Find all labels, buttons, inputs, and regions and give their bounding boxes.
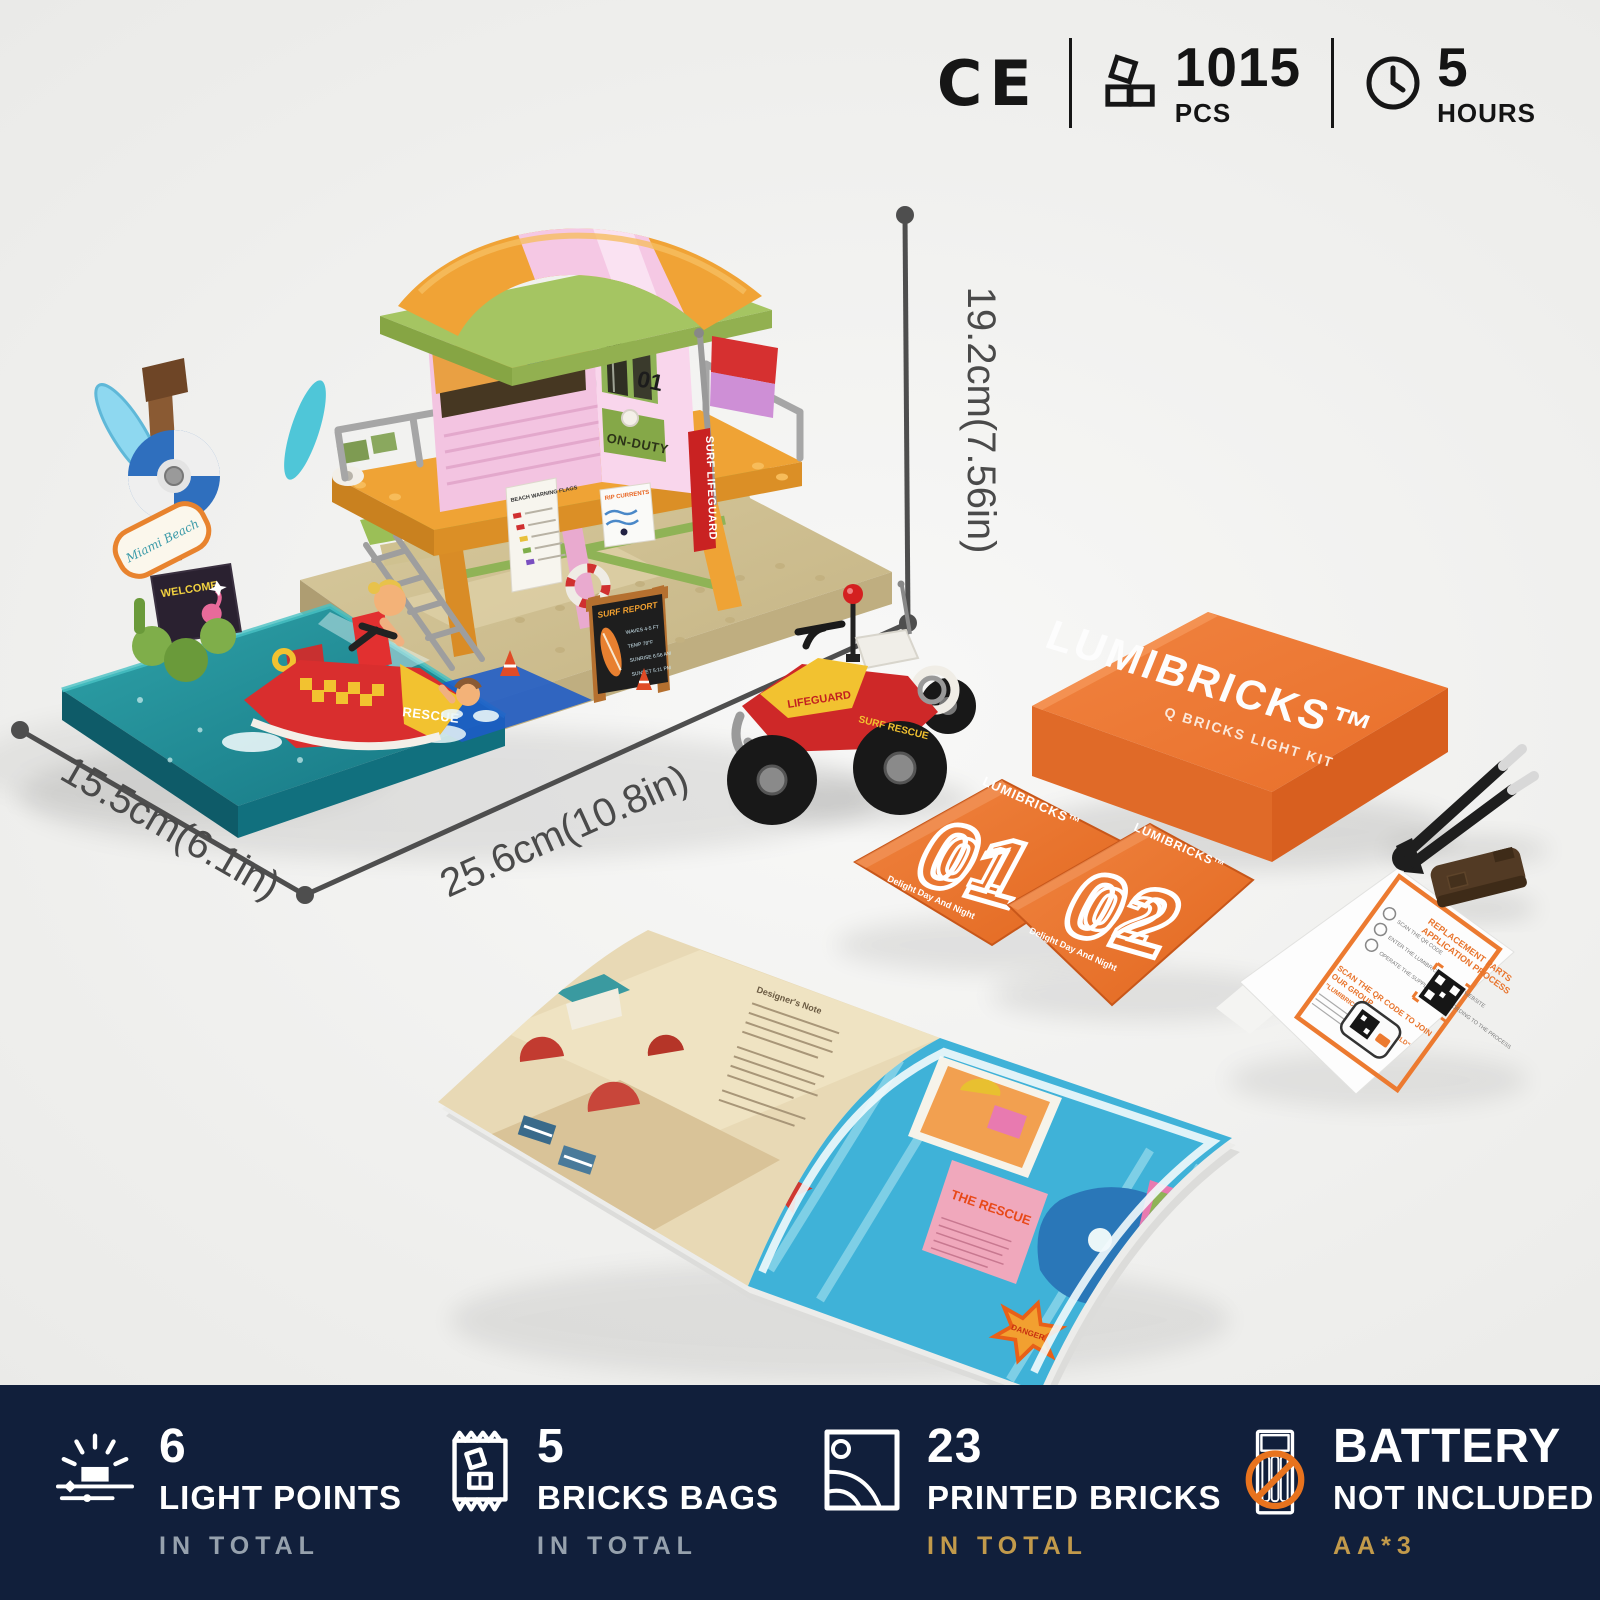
surf-report-board: SURF REPORT WAVES 4-5 FT TEMP 78°F SUNRI… bbox=[586, 585, 672, 703]
feature-label: PRINTED BRICKS bbox=[927, 1481, 1222, 1514]
feature-battery: BATTERY NOT INCLUDED AA*3 bbox=[1242, 1423, 1594, 1559]
beach-signpost: Miami Beach WELCOME bbox=[85, 358, 241, 682]
pieces-unit: PCS bbox=[1175, 100, 1301, 126]
pieces-count-badge: 1015 PCS bbox=[1102, 40, 1301, 126]
features-bar: 6 LIGHT POINTS IN TOTAL 5 BRICKS BAGS IN… bbox=[0, 1385, 1600, 1600]
feature-light-points: 6 LIGHT POINTS IN TOTAL bbox=[56, 1423, 402, 1559]
certification-badges: CE 1015 PCS 5 HO bbox=[937, 38, 1536, 128]
time-unit: HOURS bbox=[1437, 100, 1536, 126]
bricks-bag-icon bbox=[448, 1425, 512, 1519]
product-infographic: 15.5cm(6.1in) 25.6cm(10.8in) 19.2cm(7.56… bbox=[0, 0, 1600, 1600]
build-time-badge: 5 HOURS bbox=[1364, 40, 1536, 126]
badge-divider bbox=[1331, 38, 1334, 128]
feature-note: IN TOTAL bbox=[927, 1534, 1222, 1559]
feature-note: AA*3 bbox=[1333, 1534, 1594, 1559]
feature-note: IN TOTAL bbox=[537, 1534, 779, 1559]
feature-value: BATTERY bbox=[1333, 1423, 1594, 1471]
feature-label: NOT INCLUDED bbox=[1333, 1481, 1594, 1514]
rip-currents-sign: RIP CURRENTS bbox=[600, 483, 655, 547]
feature-label: BRICKS BAGS bbox=[537, 1481, 779, 1514]
battery-icon bbox=[1242, 1425, 1308, 1521]
feature-value: 23 bbox=[927, 1423, 1222, 1471]
badge-divider bbox=[1069, 38, 1072, 128]
porthole bbox=[622, 410, 638, 426]
ce-mark: CE bbox=[937, 47, 1039, 120]
brick-icon bbox=[1102, 54, 1160, 112]
feature-bricks-bags: 5 BRICKS BAGS IN TOTAL bbox=[448, 1423, 779, 1559]
time-value: 5 bbox=[1437, 40, 1536, 95]
pieces-value: 1015 bbox=[1175, 40, 1301, 95]
light-points-icon bbox=[56, 1425, 134, 1505]
product-photo: 15.5cm(6.1in) 25.6cm(10.8in) 19.2cm(7.56… bbox=[0, 0, 1600, 1600]
bush bbox=[200, 618, 236, 654]
deck-surfboard bbox=[276, 376, 335, 484]
feature-note: IN TOTAL bbox=[159, 1534, 402, 1559]
height-dimension-label: 19.2cm(7.56in) bbox=[959, 287, 1003, 554]
bush bbox=[164, 638, 208, 682]
printed-bricks-icon bbox=[822, 1425, 902, 1515]
clock-icon bbox=[1364, 54, 1422, 112]
feature-label: LIGHT POINTS bbox=[159, 1481, 402, 1514]
feature-printed-bricks: 23 PRINTED BRICKS IN TOTAL bbox=[822, 1423, 1222, 1559]
feature-value: 5 bbox=[537, 1423, 779, 1471]
feature-value: 6 bbox=[159, 1423, 402, 1471]
